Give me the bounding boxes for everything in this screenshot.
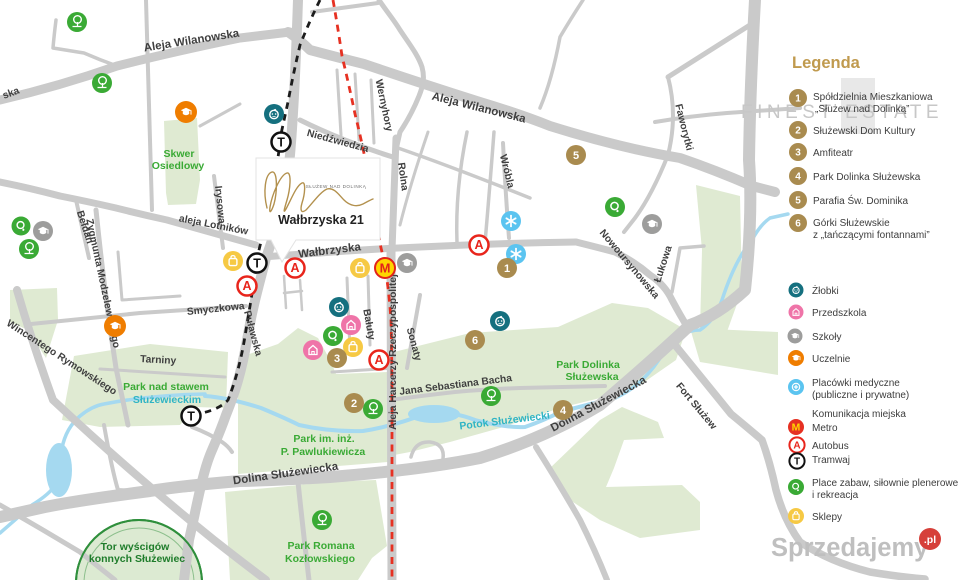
svg-text:Park Romana: Park Romana: [287, 540, 354, 552]
svg-text:Park Dolinka Służewska: Park Dolinka Służewska: [813, 172, 921, 183]
svg-text:Sklepy: Sklepy: [812, 512, 842, 523]
svg-text:2: 2: [351, 398, 357, 410]
svg-text:1: 1: [795, 94, 801, 105]
svg-text:4: 4: [795, 172, 801, 183]
svg-text:P. Pawlukiewicza: P. Pawlukiewicza: [281, 446, 366, 458]
svg-text:4: 4: [560, 405, 567, 417]
svg-text:6: 6: [472, 335, 478, 347]
svg-text:2: 2: [795, 126, 801, 137]
svg-text:Legenda: Legenda: [792, 54, 861, 72]
svg-text:3: 3: [334, 353, 340, 365]
svg-text:Szkoły: Szkoły: [812, 332, 841, 343]
svg-text:i rekreacja: i rekreacja: [812, 490, 859, 501]
svg-text:Placówki medyczne: Placówki medyczne: [812, 378, 900, 389]
svg-text:Autobus: Autobus: [812, 441, 849, 452]
svg-text:Skwer: Skwer: [164, 148, 195, 160]
svg-text:Parafia Św. Dominika: Parafia Św. Dominika: [813, 194, 908, 207]
svg-text:1: 1: [504, 263, 510, 275]
svg-text:z „tańczącymi fontannami”: z „tańczącymi fontannami”: [813, 230, 930, 241]
svg-text:6: 6: [795, 219, 801, 230]
svg-text:Spółdzielnia Mieszkaniowa: Spółdzielnia Mieszkaniowa: [813, 92, 933, 103]
svg-text:Amfiteatr: Amfiteatr: [813, 148, 854, 159]
svg-text:Metro: Metro: [812, 423, 838, 434]
svg-text:Aleja Harcerzy Rzeczypospolite: Aleja Harcerzy Rzeczypospolitej: [388, 274, 399, 430]
svg-text:Sprzedajemy: Sprzedajemy: [771, 534, 929, 562]
svg-text:Uczelnie: Uczelnie: [812, 354, 851, 365]
svg-text:Kozłowskiego: Kozłowskiego: [285, 553, 355, 565]
svg-text:Osiedlowy: Osiedlowy: [152, 160, 205, 172]
svg-text:Tramwaj: Tramwaj: [812, 455, 850, 466]
svg-text:5: 5: [795, 196, 801, 207]
svg-text:Wałbrzyska 21: Wałbrzyska 21: [278, 213, 364, 227]
svg-text:Służewska: Służewska: [565, 371, 618, 383]
svg-text:„Służew nad Dolinką”: „Służew nad Dolinką”: [815, 104, 910, 115]
svg-text:Górki Służewskie: Górki Służewskie: [813, 218, 890, 229]
svg-text:konnych Służewiec: konnych Służewiec: [89, 553, 185, 565]
svg-text:Komunikacja miejska: Komunikacja miejska: [812, 409, 906, 420]
svg-text:Przedszkola: Przedszkola: [812, 308, 867, 319]
svg-text:3: 3: [795, 148, 801, 159]
svg-text:Park nad stawem: Park nad stawem: [123, 381, 209, 393]
svg-text:Park im. inż.: Park im. inż.: [293, 433, 354, 445]
svg-text:.pl: .pl: [924, 534, 936, 546]
svg-text:Tor wyścigów: Tor wyścigów: [101, 541, 170, 553]
svg-text:Służewieckim: Służewieckim: [133, 394, 201, 406]
svg-text:5: 5: [573, 150, 579, 162]
svg-text:Place zabaw, siłownie plenerow: Place zabaw, siłownie plenerowe: [812, 478, 959, 489]
svg-text:Park Dolinka: Park Dolinka: [556, 359, 620, 371]
svg-text:SŁUŻEW NAD DOLINKĄ: SŁUŻEW NAD DOLINKĄ: [306, 183, 367, 189]
svg-text:Tarniny: Tarniny: [140, 354, 177, 367]
svg-text:Żłobki: Żłobki: [812, 284, 839, 297]
svg-text:Służewski Dom Kultury: Służewski Dom Kultury: [813, 126, 915, 137]
svg-text:(publiczne i prywatne): (publiczne i prywatne): [812, 390, 909, 401]
